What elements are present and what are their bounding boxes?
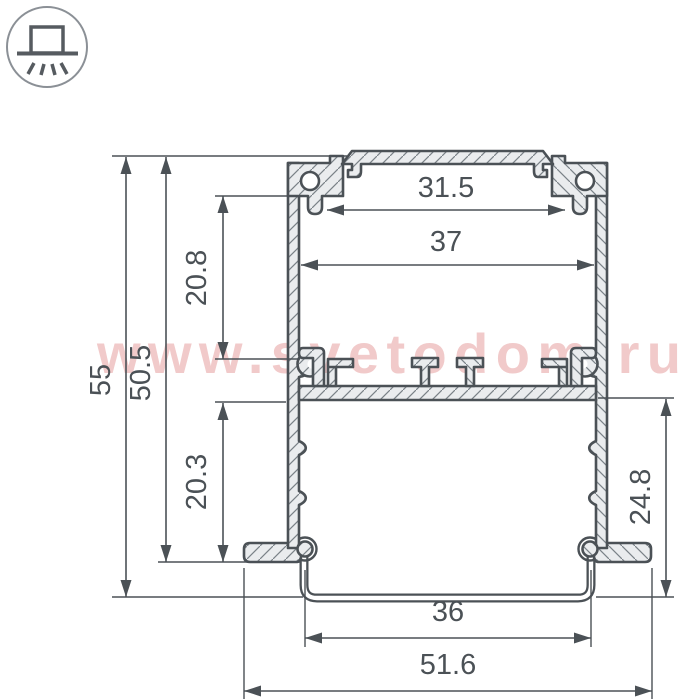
dimension-label-overall-height: 55 xyxy=(85,364,117,396)
arrowhead xyxy=(327,205,344,216)
arrowhead xyxy=(161,545,172,562)
diffuser-lens xyxy=(304,552,591,598)
screenshot-canvas: www.svetodom.ru xyxy=(0,0,681,700)
arrowhead xyxy=(244,686,261,697)
dimension-label-top-opening-width: 31.5 xyxy=(418,172,474,204)
arrowhead xyxy=(218,196,229,213)
arrowhead xyxy=(635,686,652,697)
diffuser-outer-line xyxy=(304,552,591,598)
dimensions-layer: 31.5373651.65550.520.820.324.8 xyxy=(85,156,674,699)
dimension-label-recess-depth: 24.8 xyxy=(625,469,657,525)
arrowhead xyxy=(574,633,591,644)
dimension-label-diffuser-width: 36 xyxy=(432,596,464,628)
technical-drawing: www.svetodom.ru xyxy=(0,0,681,700)
arrowhead xyxy=(661,399,672,416)
arrowhead xyxy=(305,633,322,644)
arrowhead xyxy=(218,545,229,562)
dimension-label-upper-cavity-height: 20.8 xyxy=(181,250,213,306)
arrowhead xyxy=(121,580,132,597)
arrowhead xyxy=(661,580,672,597)
mount-type-badge xyxy=(7,7,87,87)
dimension-label-body-height: 50.5 xyxy=(125,345,157,401)
arrowhead xyxy=(548,205,565,216)
arrowhead xyxy=(301,260,318,271)
lens-retainer-bulb xyxy=(298,542,313,557)
arrowhead xyxy=(577,260,594,271)
arrowhead xyxy=(161,157,172,174)
icon-circle xyxy=(7,7,87,87)
arrowhead xyxy=(121,157,132,174)
plate-web xyxy=(299,386,596,400)
dimension-label-lower-cavity-height: 20.3 xyxy=(181,454,213,510)
dimension-label-inner-width: 37 xyxy=(430,226,462,258)
arrowhead xyxy=(218,403,229,420)
dimension-label-overall-width: 51.6 xyxy=(420,649,476,681)
diffuser-inner-line xyxy=(304,552,591,598)
screw-channel-top xyxy=(301,172,319,190)
